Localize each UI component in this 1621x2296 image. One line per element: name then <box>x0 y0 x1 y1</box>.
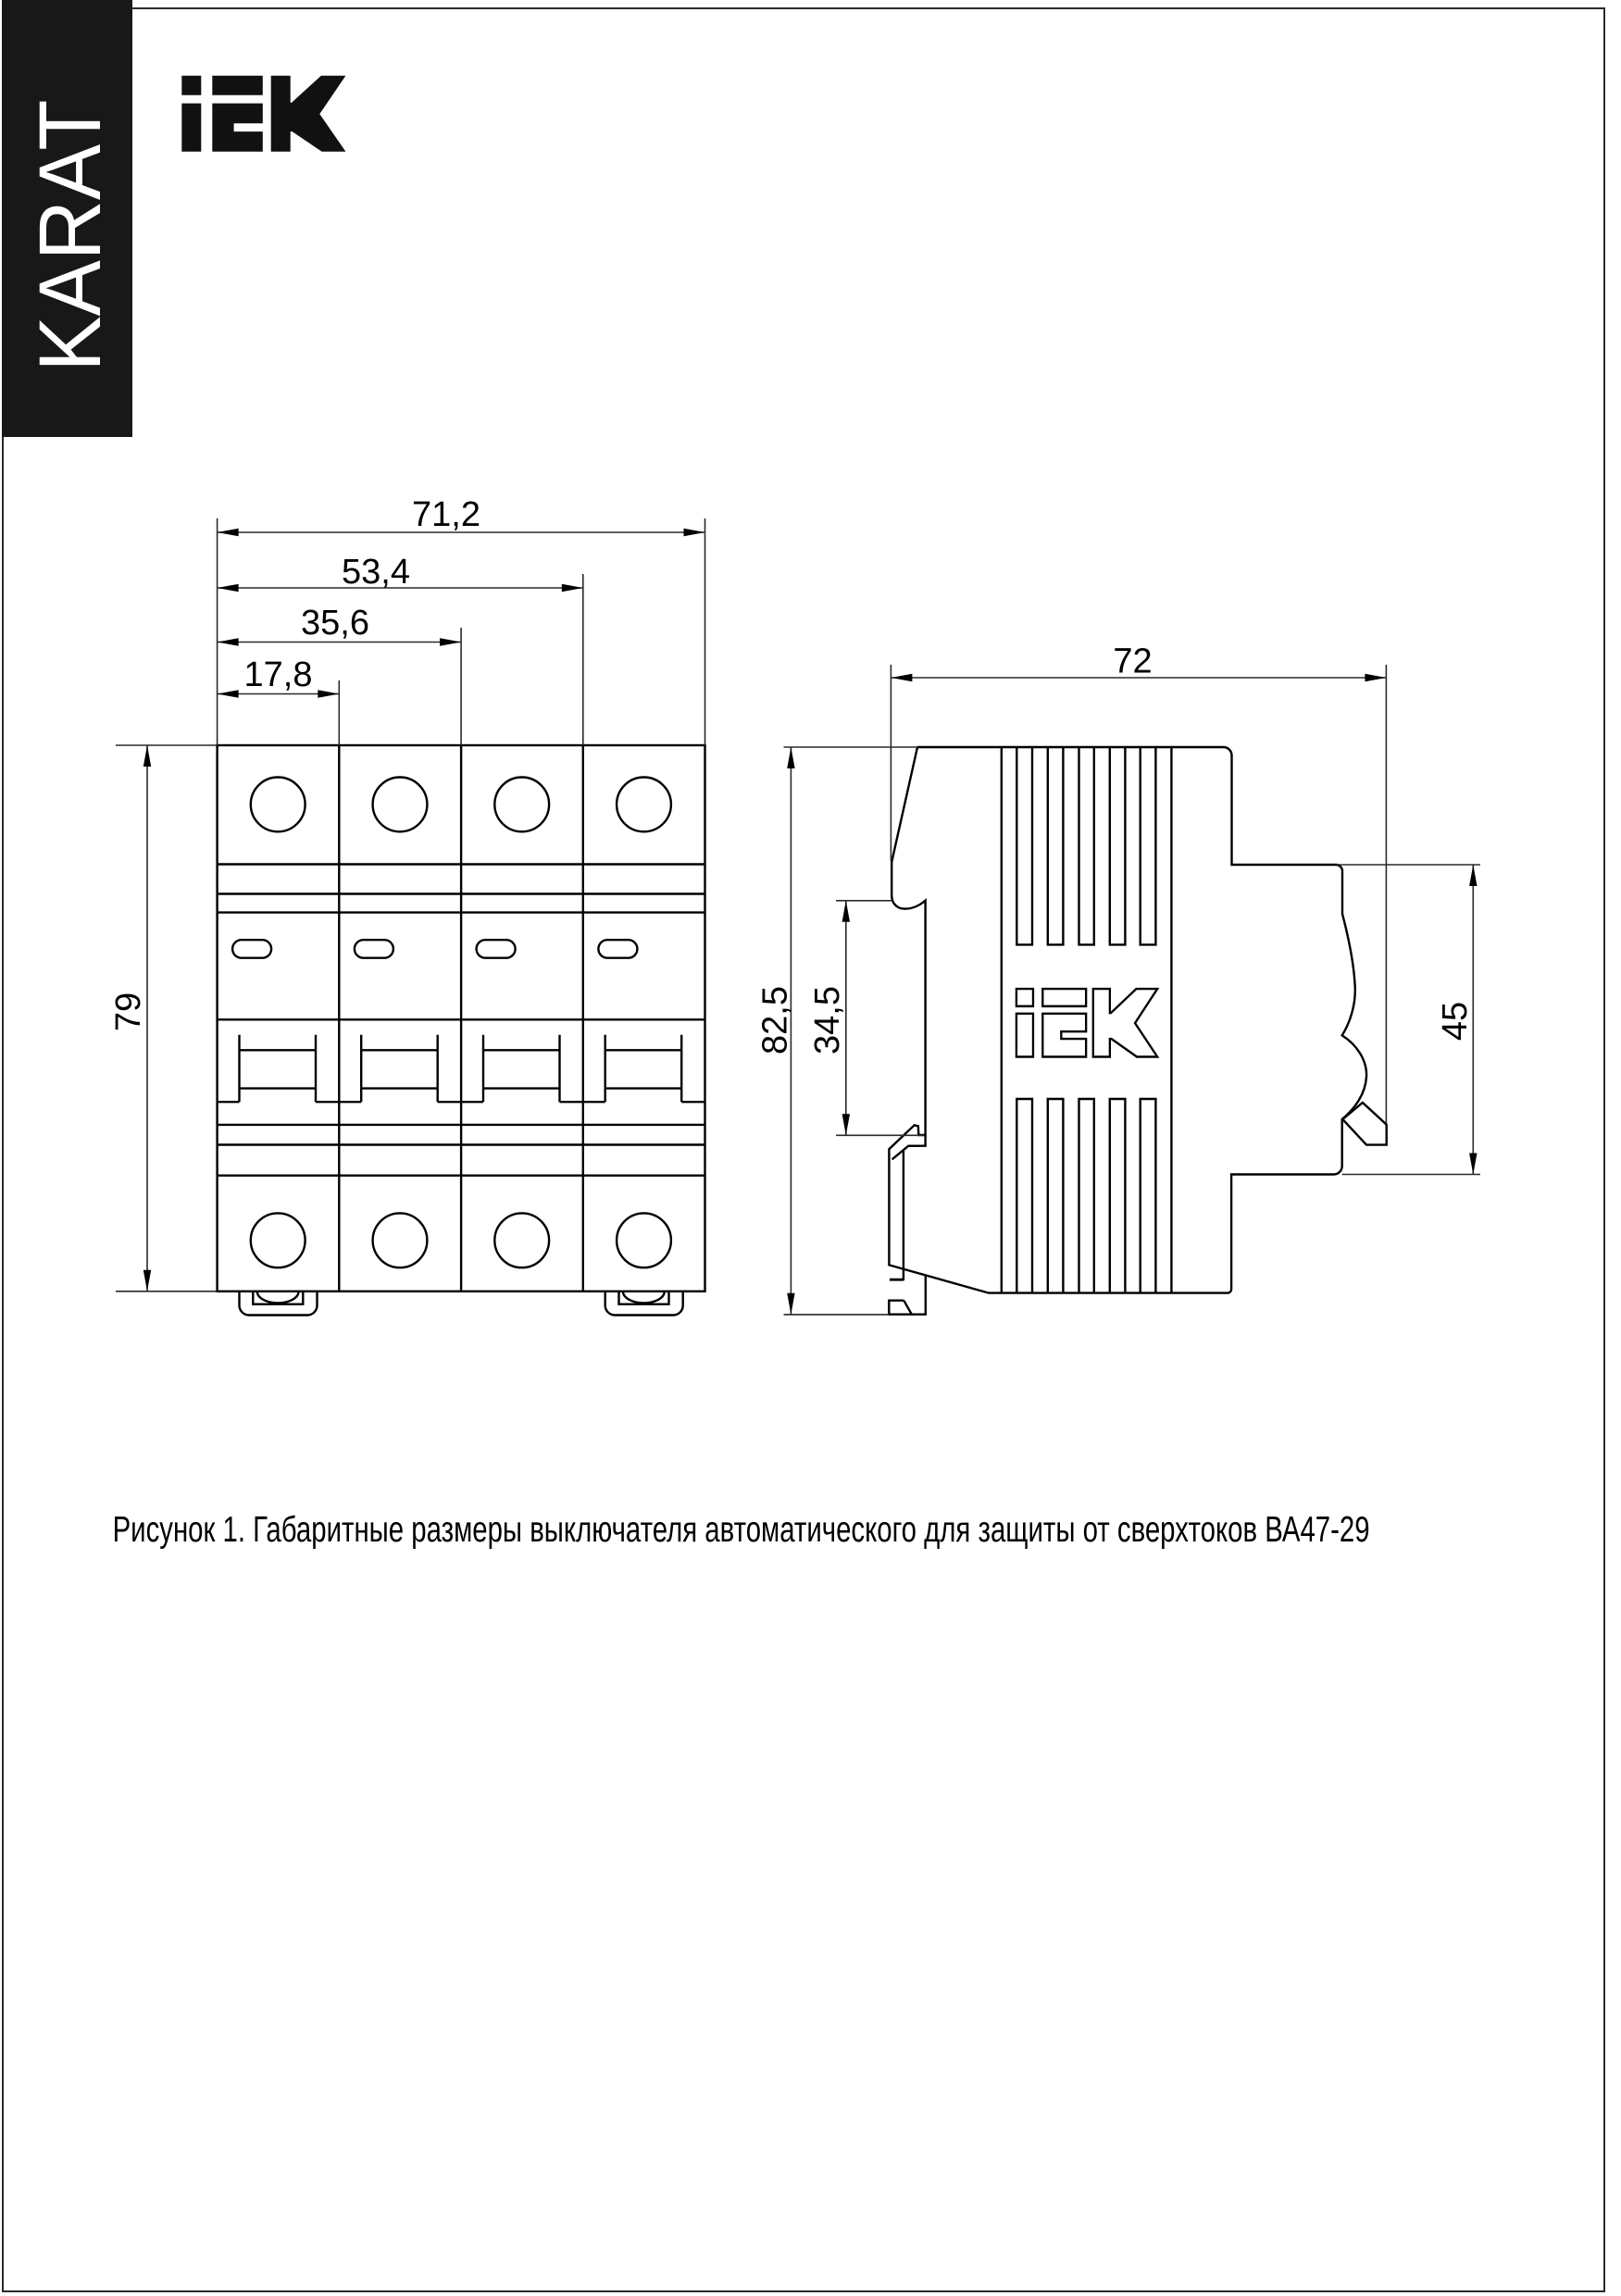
svg-text:71,2: 71,2 <box>412 495 480 534</box>
svg-text:KARAT: KARAT <box>21 100 119 372</box>
svg-text:34,5: 34,5 <box>808 986 847 1054</box>
svg-text:82,5: 82,5 <box>756 986 795 1054</box>
svg-text:35,6: 35,6 <box>301 604 369 643</box>
svg-text:45: 45 <box>1436 1002 1475 1041</box>
svg-text:72: 72 <box>1113 643 1152 681</box>
svg-text:53,4: 53,4 <box>342 553 410 592</box>
svg-text:79: 79 <box>109 992 148 1031</box>
svg-text:17,8: 17,8 <box>244 655 313 694</box>
svg-text:Рисунок 1. Габаритные размеры: Рисунок 1. Габаритные размеры выключател… <box>113 1510 1370 1550</box>
